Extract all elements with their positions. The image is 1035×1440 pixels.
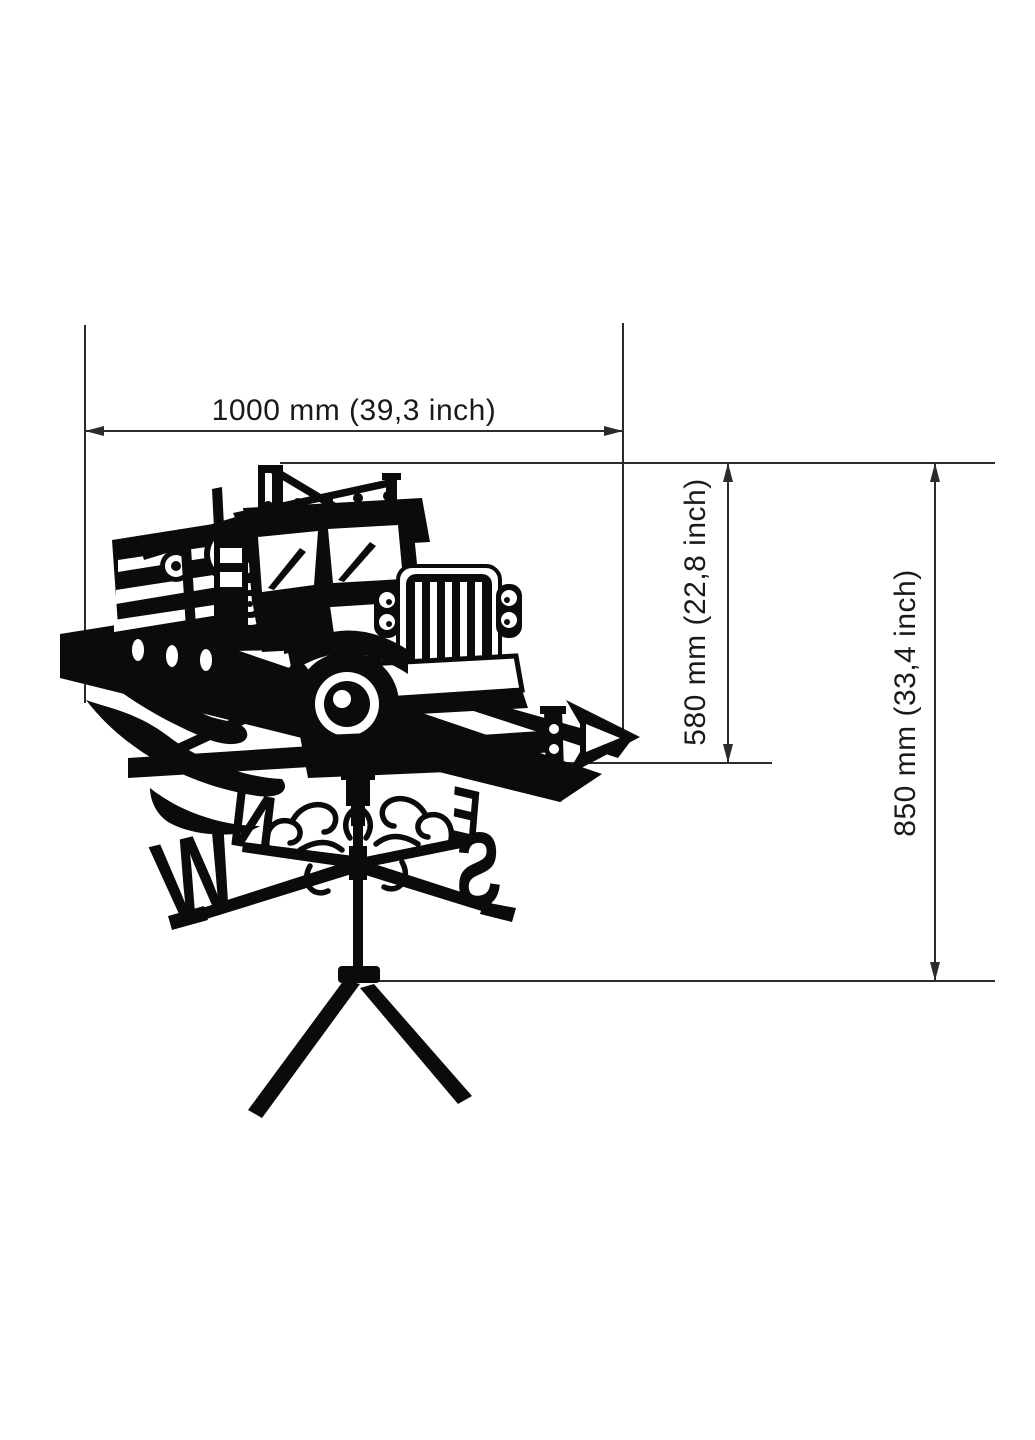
- tripod-stand: [248, 966, 472, 1118]
- compass-letter-n: N: [225, 775, 281, 869]
- width-dimension-label: 1000 mm (39,3 inch): [85, 392, 623, 430]
- tripod-leg-left: [248, 980, 360, 1118]
- truck-cab: [214, 465, 528, 778]
- vane-height-dimension-label: 580 mm (22,8 inch): [677, 452, 715, 772]
- compass-letter-s: S: [453, 807, 503, 931]
- overall-height-dimension-label: 850 mm (33,4 inch): [887, 543, 925, 863]
- compass-rose: N E W S: [143, 770, 516, 948]
- weathervane-figure: N E W S: [60, 465, 640, 1118]
- compass-hub: [347, 853, 369, 875]
- diagram-drawing: N E W S: [0, 0, 1035, 1440]
- product-dimension-diagram: N E W S 1000 mm (39,3 inch) 580 mm (22,8…: [0, 0, 1035, 1440]
- tripod-leg-right: [360, 984, 472, 1104]
